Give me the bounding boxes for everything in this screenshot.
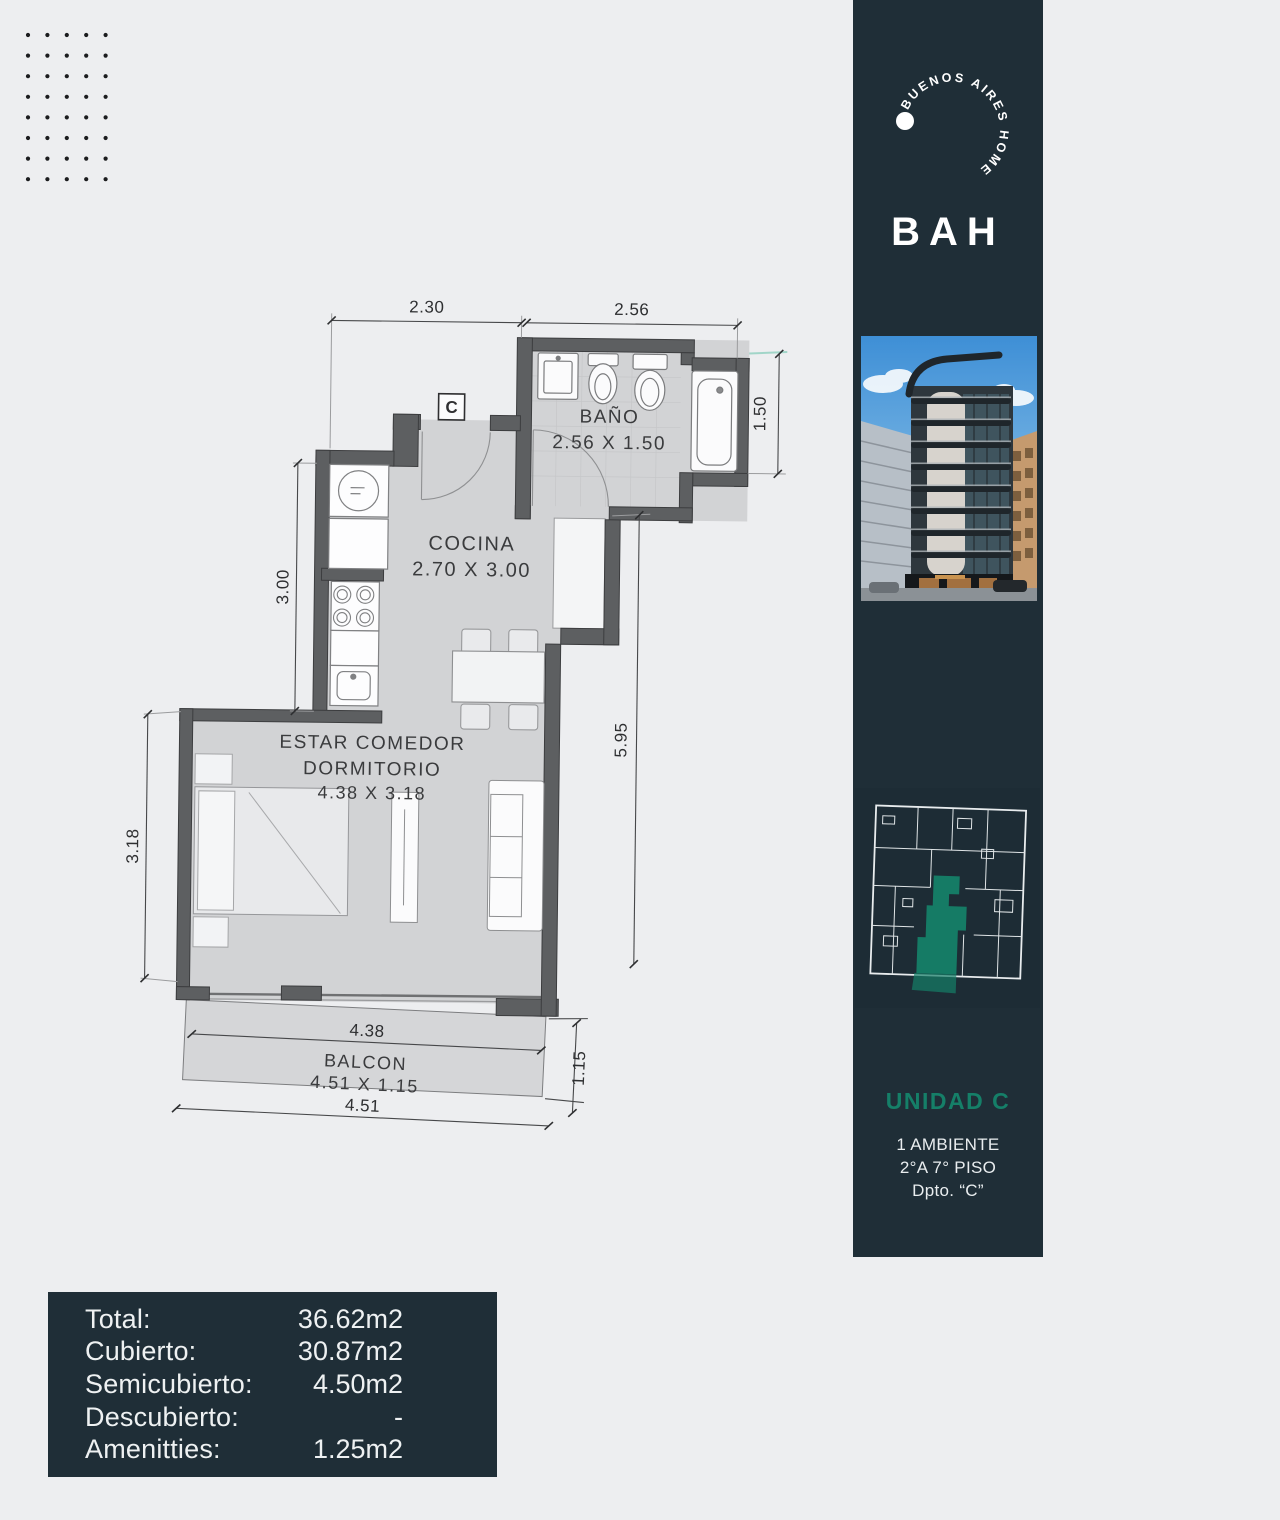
summary-value: 36.62m2 — [298, 1304, 403, 1335]
car — [869, 582, 899, 593]
dim-right-height: 5.95 — [611, 722, 630, 757]
living-size-label: 4.38 X 3.18 — [317, 782, 426, 803]
bed-pillows — [197, 791, 234, 910]
chair — [462, 629, 491, 653]
floorplate-thumbnail — [855, 788, 1040, 1008]
kitchen-size-label: 2.70 X 3.00 — [412, 558, 531, 581]
sidebar: BUENOS AIRES HOME BAH — [853, 0, 1043, 1257]
nightstand — [195, 754, 232, 784]
stove — [331, 581, 380, 631]
unit-title: UNIDAD C — [853, 1088, 1043, 1115]
unit-info-line: 1 AMBIENTE — [853, 1133, 1043, 1156]
unit-marker: C — [438, 394, 464, 420]
dining-table — [452, 651, 545, 703]
fridge — [329, 518, 389, 569]
dim-balcony-outer: 4.51 — [345, 1095, 381, 1116]
unit-marker-letter: C — [445, 398, 458, 417]
car — [993, 580, 1027, 592]
dim-top-left: 2.30 — [409, 297, 444, 316]
summary-label: Amenitties: — [85, 1434, 221, 1465]
toilet-tank — [633, 354, 667, 369]
sofa — [487, 780, 544, 931]
summary-row: Cubierto: 30.87m2 — [85, 1336, 403, 1367]
highlighted-unit-balcony — [912, 973, 957, 994]
dim-room-side: 3.18 — [123, 828, 142, 863]
logo-dot — [896, 112, 914, 130]
building-photo — [861, 336, 1037, 601]
chair — [461, 704, 490, 729]
unit-info-line: 2°A 7° PISO — [853, 1156, 1043, 1179]
right-building — [1009, 431, 1037, 601]
kitchen-counter — [330, 630, 378, 666]
toilet — [635, 370, 665, 410]
chair — [509, 705, 538, 730]
chair — [509, 630, 538, 654]
brand-wordmark: BAH — [891, 210, 1005, 254]
bath-label: BAÑO — [579, 405, 639, 428]
summary-label: Cubierto: — [85, 1336, 196, 1367]
summary-value: - — [394, 1402, 403, 1433]
main-building — [905, 355, 1013, 596]
summary-label: Descubierto: — [85, 1402, 239, 1433]
unit-info-line: Dpto. “C” — [853, 1179, 1043, 1202]
kitchen-label: COCINA — [428, 533, 515, 556]
nightstand — [193, 917, 228, 947]
dim-balcony-inner: 4.38 — [349, 1020, 385, 1041]
dim-kitchen-side: 3.00 — [273, 569, 292, 604]
logo-circle-text: BUENOS AIRES HOME — [898, 70, 1011, 178]
dim-bath-side: 1.50 — [750, 396, 769, 431]
air-shaft — [553, 518, 605, 629]
balcony-group: 4.38 4.51 1.15 BALCON 4.51 X 1.15 — [172, 999, 591, 1131]
summary-row: Semicubierto: 4.50m2 — [85, 1369, 403, 1400]
summary-row: Amenitties: 1.25m2 — [85, 1434, 403, 1465]
bath-size-label: 2.56 X 1.50 — [552, 432, 666, 454]
area-summary-table: Total: 36.62m2 Cubierto: 30.87m2 Semicub… — [48, 1292, 497, 1477]
summary-row: Total: 36.62m2 — [85, 1304, 403, 1335]
summary-label: Semicubierto: — [85, 1369, 253, 1400]
summary-value: 4.50m2 — [313, 1369, 403, 1400]
summary-value: 30.87m2 — [298, 1336, 403, 1367]
brand-logo: BUENOS AIRES HOME BAH — [853, 0, 1043, 270]
living-label-2: DORMITORIO — [303, 758, 441, 781]
floor-plan: 4.38 4.51 1.15 BALCON 4.51 X 1.15 — [100, 290, 810, 1170]
unit-info-block: UNIDAD C 1 AMBIENTE 2°A 7° PISO Dpto. “C… — [853, 1088, 1043, 1202]
summary-row: Descubierto: - — [85, 1402, 403, 1433]
bidet — [589, 364, 617, 404]
balcony-label: BALCON — [324, 1050, 408, 1074]
living-label-1: ESTAR COMEDOR — [279, 732, 465, 755]
dim-balcony-depth: 1.15 — [569, 1050, 590, 1086]
dim-top-right: 2.56 — [614, 300, 649, 319]
summary-label: Total: — [85, 1304, 151, 1335]
summary-value: 1.25m2 — [313, 1434, 403, 1465]
dot-grid-decoration — [20, 28, 130, 198]
svg-text:BUENOS AIRES HOME: BUENOS AIRES HOME — [898, 70, 1011, 178]
balcony-size-label: 4.51 X 1.15 — [310, 1072, 419, 1097]
